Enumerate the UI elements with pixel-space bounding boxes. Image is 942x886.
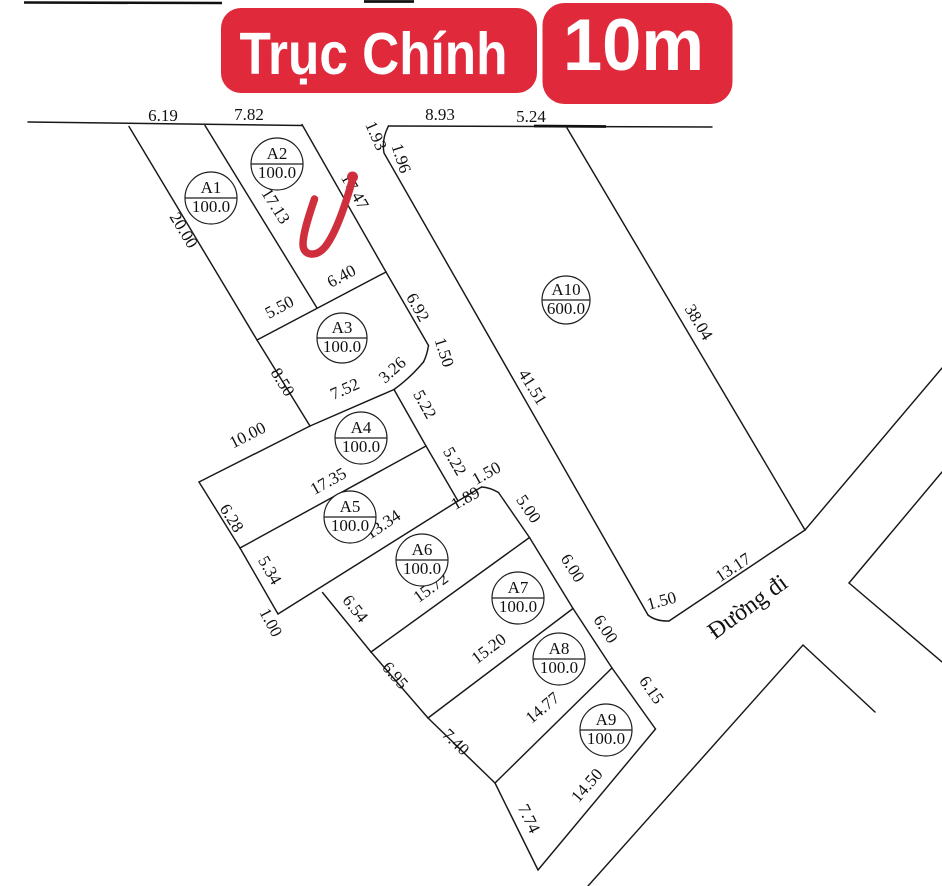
svg-text:100.0: 100.0 [540, 658, 578, 677]
svg-text:A5: A5 [340, 497, 361, 516]
svg-text:100.0: 100.0 [403, 559, 441, 578]
svg-text:10m: 10m [563, 5, 704, 86]
svg-text:100.0: 100.0 [192, 197, 230, 216]
svg-text:A7: A7 [508, 578, 529, 597]
svg-text:A3: A3 [332, 318, 353, 337]
svg-text:A8: A8 [549, 639, 570, 658]
svg-text:5.24: 5.24 [516, 107, 546, 126]
svg-text:A9: A9 [596, 710, 617, 729]
svg-text:A10: A10 [551, 280, 580, 299]
svg-text:100.0: 100.0 [499, 597, 537, 616]
svg-text:100.0: 100.0 [258, 163, 296, 182]
svg-text:100.0: 100.0 [323, 337, 361, 356]
svg-text:100.0: 100.0 [587, 729, 625, 748]
svg-text:100.0: 100.0 [342, 437, 380, 456]
svg-text:7.82: 7.82 [234, 105, 264, 124]
svg-text:8.93: 8.93 [425, 105, 455, 124]
svg-text:6.19: 6.19 [148, 106, 178, 125]
svg-text:600.0: 600.0 [547, 299, 585, 318]
svg-text:100.0: 100.0 [331, 516, 369, 535]
svg-text:A4: A4 [351, 418, 372, 437]
svg-text:A6: A6 [412, 540, 433, 559]
svg-text:Trục Chính: Trục Chính [240, 21, 508, 87]
svg-text:A1: A1 [201, 178, 222, 197]
svg-text:A2: A2 [267, 144, 288, 163]
